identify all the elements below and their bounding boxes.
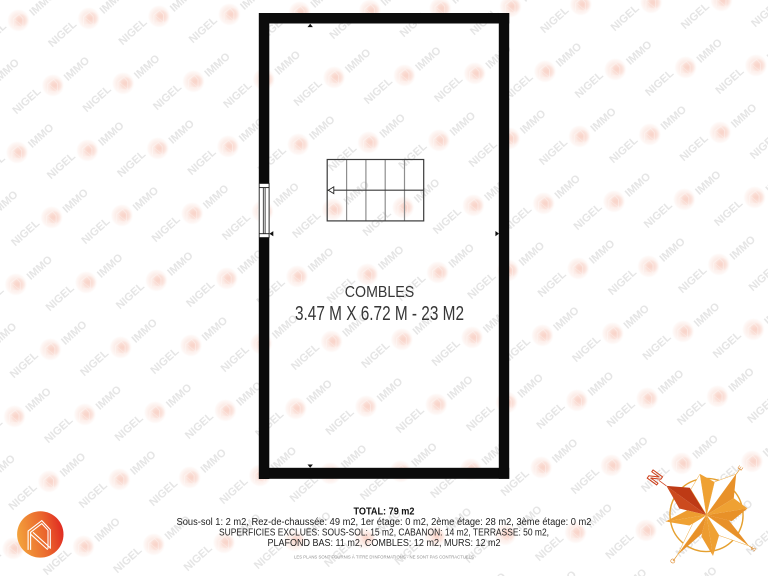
svg-text:O: O xyxy=(669,557,678,565)
svg-text:Sous-sol 1: 2 m2, Rez-de-chaus: Sous-sol 1: 2 m2, Rez-de-chaussée: 49 m2… xyxy=(177,517,592,528)
svg-text:SUPERFICIES EXCLUES: SOUS-SOL:: SUPERFICIES EXCLUES: SOUS-SOL: 15 m2, CA… xyxy=(219,527,549,538)
svg-text:LES PLANS SONT FOURNIS À TITRE: LES PLANS SONT FOURNIS À TITRE D'INFORMA… xyxy=(294,554,474,560)
svg-text:COMBLES: COMBLES xyxy=(345,284,415,301)
svg-text:3.47 M X 6.72 M - 23 M2: 3.47 M X 6.72 M - 23 M2 xyxy=(295,303,464,325)
svg-text:TOTAL: 79 m2: TOTAL: 79 m2 xyxy=(354,506,415,517)
svg-text:PLAFOND BAS: 11 m2, COMBLES: 1: PLAFOND BAS: 11 m2, COMBLES: 12 m2, MURS… xyxy=(268,538,501,549)
